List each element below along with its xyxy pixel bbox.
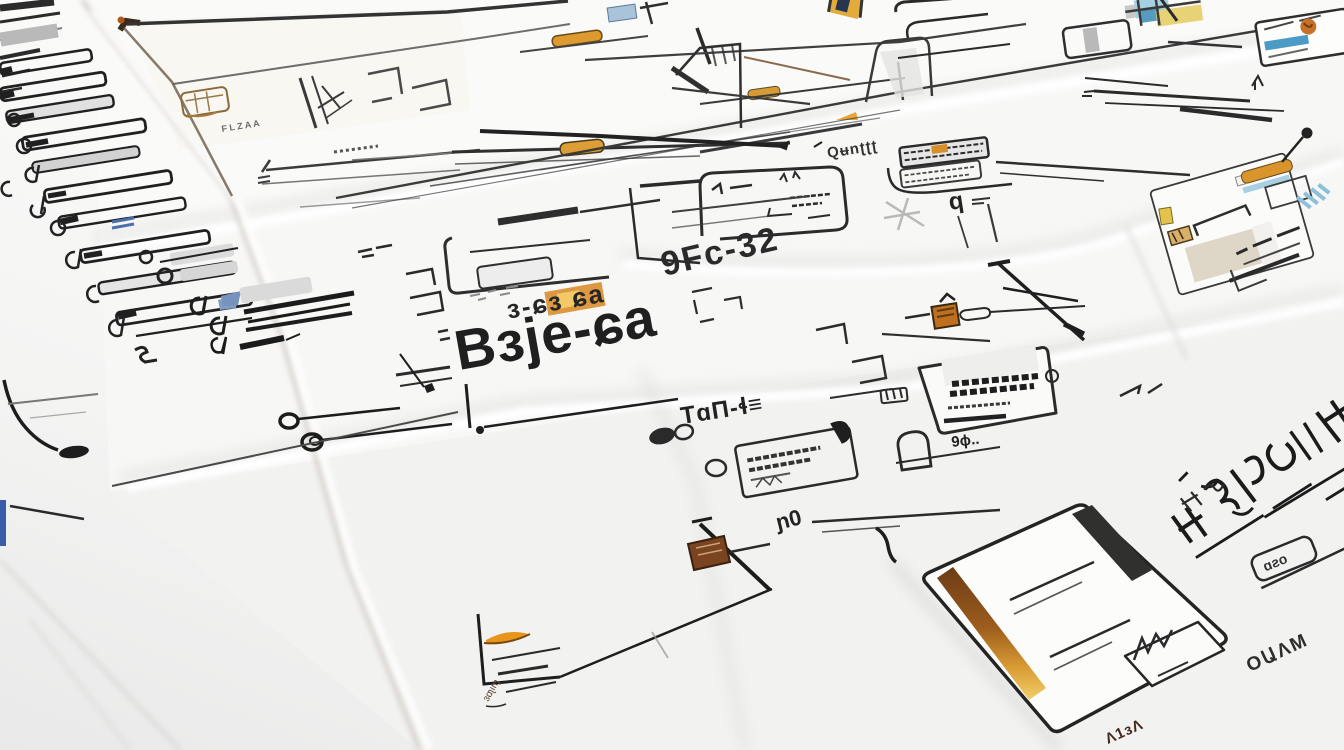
svg-text:9ɸ..: 9ɸ.. (950, 431, 980, 451)
